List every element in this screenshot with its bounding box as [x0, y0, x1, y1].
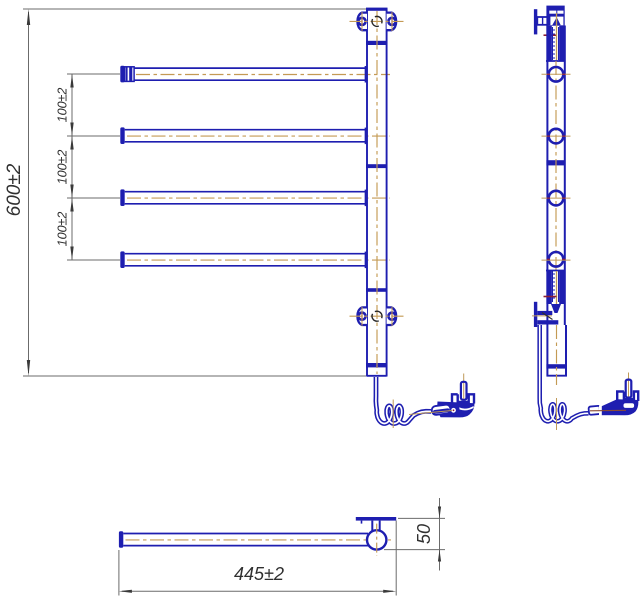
svg-text:100±2: 100±2 [56, 88, 70, 123]
svg-text:100±2: 100±2 [56, 212, 70, 247]
svg-text:100±2: 100±2 [56, 150, 70, 185]
svg-text:445±2: 445±2 [234, 564, 284, 584]
svg-text:50: 50 [414, 524, 434, 544]
svg-text:600±2: 600±2 [4, 163, 25, 216]
